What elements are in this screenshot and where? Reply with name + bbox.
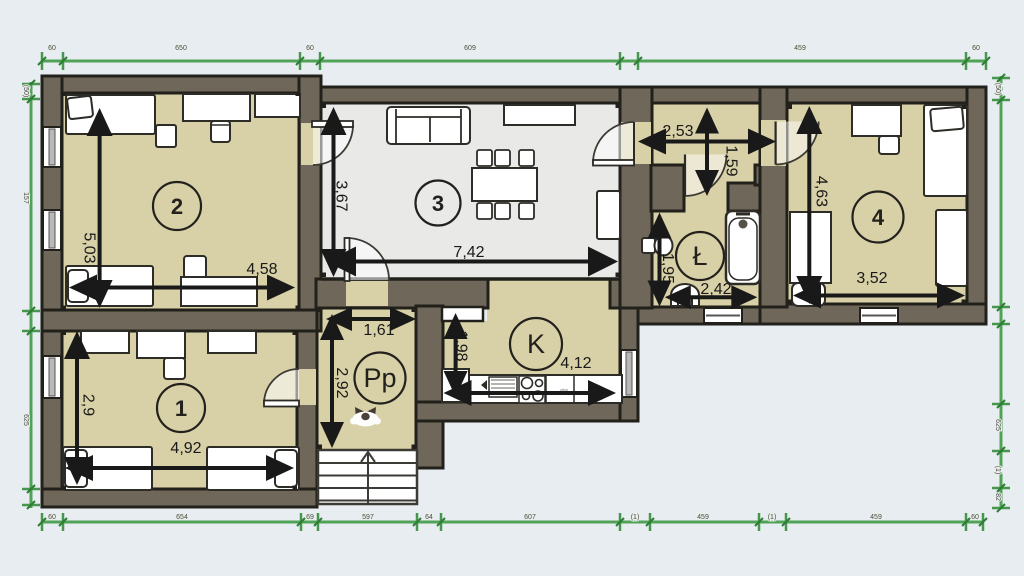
svg-text:7,42: 7,42: [453, 244, 484, 261]
svg-text:82: 82: [994, 493, 1001, 501]
svg-text:4,92: 4,92: [170, 440, 201, 457]
svg-text:(1): (1): [631, 514, 640, 521]
svg-text:650: 650: [175, 45, 187, 52]
svg-text:60: 60: [971, 514, 979, 521]
svg-text:4,63: 4,63: [813, 176, 830, 207]
svg-text:2: 2: [171, 194, 183, 219]
svg-text:1,59: 1,59: [723, 145, 740, 176]
svg-text:2,53: 2,53: [662, 123, 693, 140]
svg-text:609: 609: [464, 45, 476, 52]
svg-text:3,67: 3,67: [333, 180, 350, 211]
svg-text:459: 459: [697, 514, 709, 521]
svg-text:607: 607: [524, 514, 536, 521]
svg-text:5,03: 5,03: [81, 232, 98, 263]
svg-text:(1): (1): [994, 466, 1001, 475]
svg-text:3,52: 3,52: [856, 270, 887, 287]
svg-text:64: 64: [425, 514, 433, 521]
svg-text:625: 625: [994, 419, 1001, 431]
svg-text:2,92: 2,92: [333, 367, 350, 398]
svg-text:60: 60: [48, 45, 56, 52]
svg-text:(50): (50): [994, 83, 1001, 95]
svg-text:3: 3: [432, 191, 444, 216]
svg-text:60: 60: [306, 45, 314, 52]
svg-text:(1): (1): [768, 514, 777, 521]
svg-text:1: 1: [175, 396, 187, 421]
svg-text:4: 4: [872, 205, 885, 230]
svg-text:60: 60: [972, 45, 980, 52]
svg-text:654: 654: [176, 514, 188, 521]
svg-text:1,61: 1,61: [363, 322, 394, 339]
svg-text:Ł: Ł: [692, 241, 707, 271]
svg-text:1,95: 1,95: [659, 253, 676, 284]
svg-text:157: 157: [22, 192, 29, 204]
svg-text:459: 459: [794, 45, 806, 52]
svg-text:Pp: Pp: [363, 363, 396, 393]
svg-text:K: K: [527, 329, 545, 359]
svg-text:625: 625: [22, 414, 29, 426]
svg-text:2,42: 2,42: [700, 281, 731, 298]
svg-text:1,98: 1,98: [453, 330, 470, 361]
svg-text:60: 60: [48, 514, 56, 521]
svg-text:2,9: 2,9: [80, 394, 97, 416]
svg-text:69: 69: [306, 514, 314, 521]
svg-text:459: 459: [870, 514, 882, 521]
svg-text:4,58: 4,58: [246, 261, 277, 278]
svg-text:(50): (50): [22, 85, 29, 97]
svg-text:4,12: 4,12: [560, 355, 591, 372]
svg-text:597: 597: [362, 514, 374, 521]
